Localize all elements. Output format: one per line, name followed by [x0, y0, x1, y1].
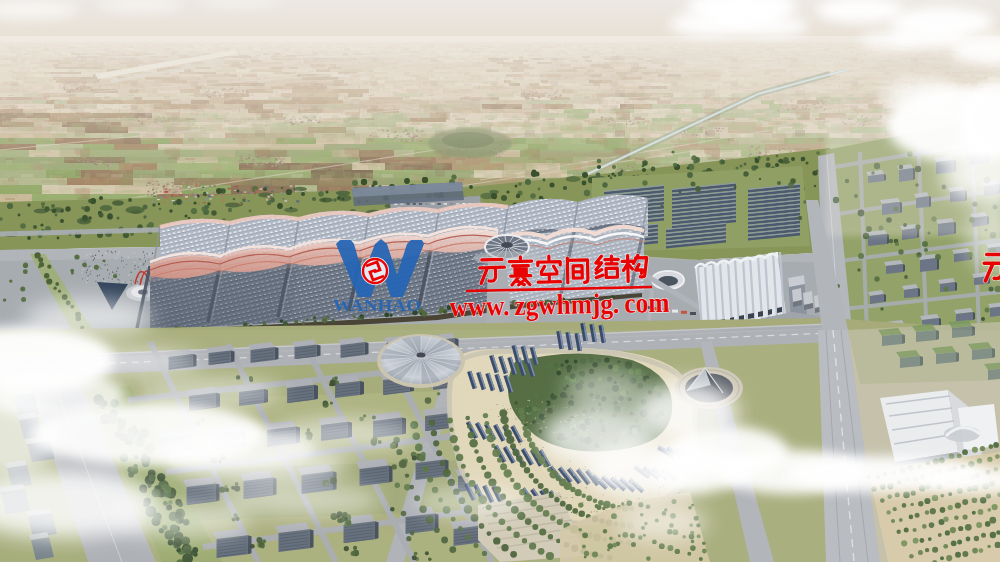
svg-text:www. zgwhmjg. com: www. zgwhmjg. com [449, 287, 670, 323]
svg-text:WANHAO: WANHAO [333, 295, 421, 315]
